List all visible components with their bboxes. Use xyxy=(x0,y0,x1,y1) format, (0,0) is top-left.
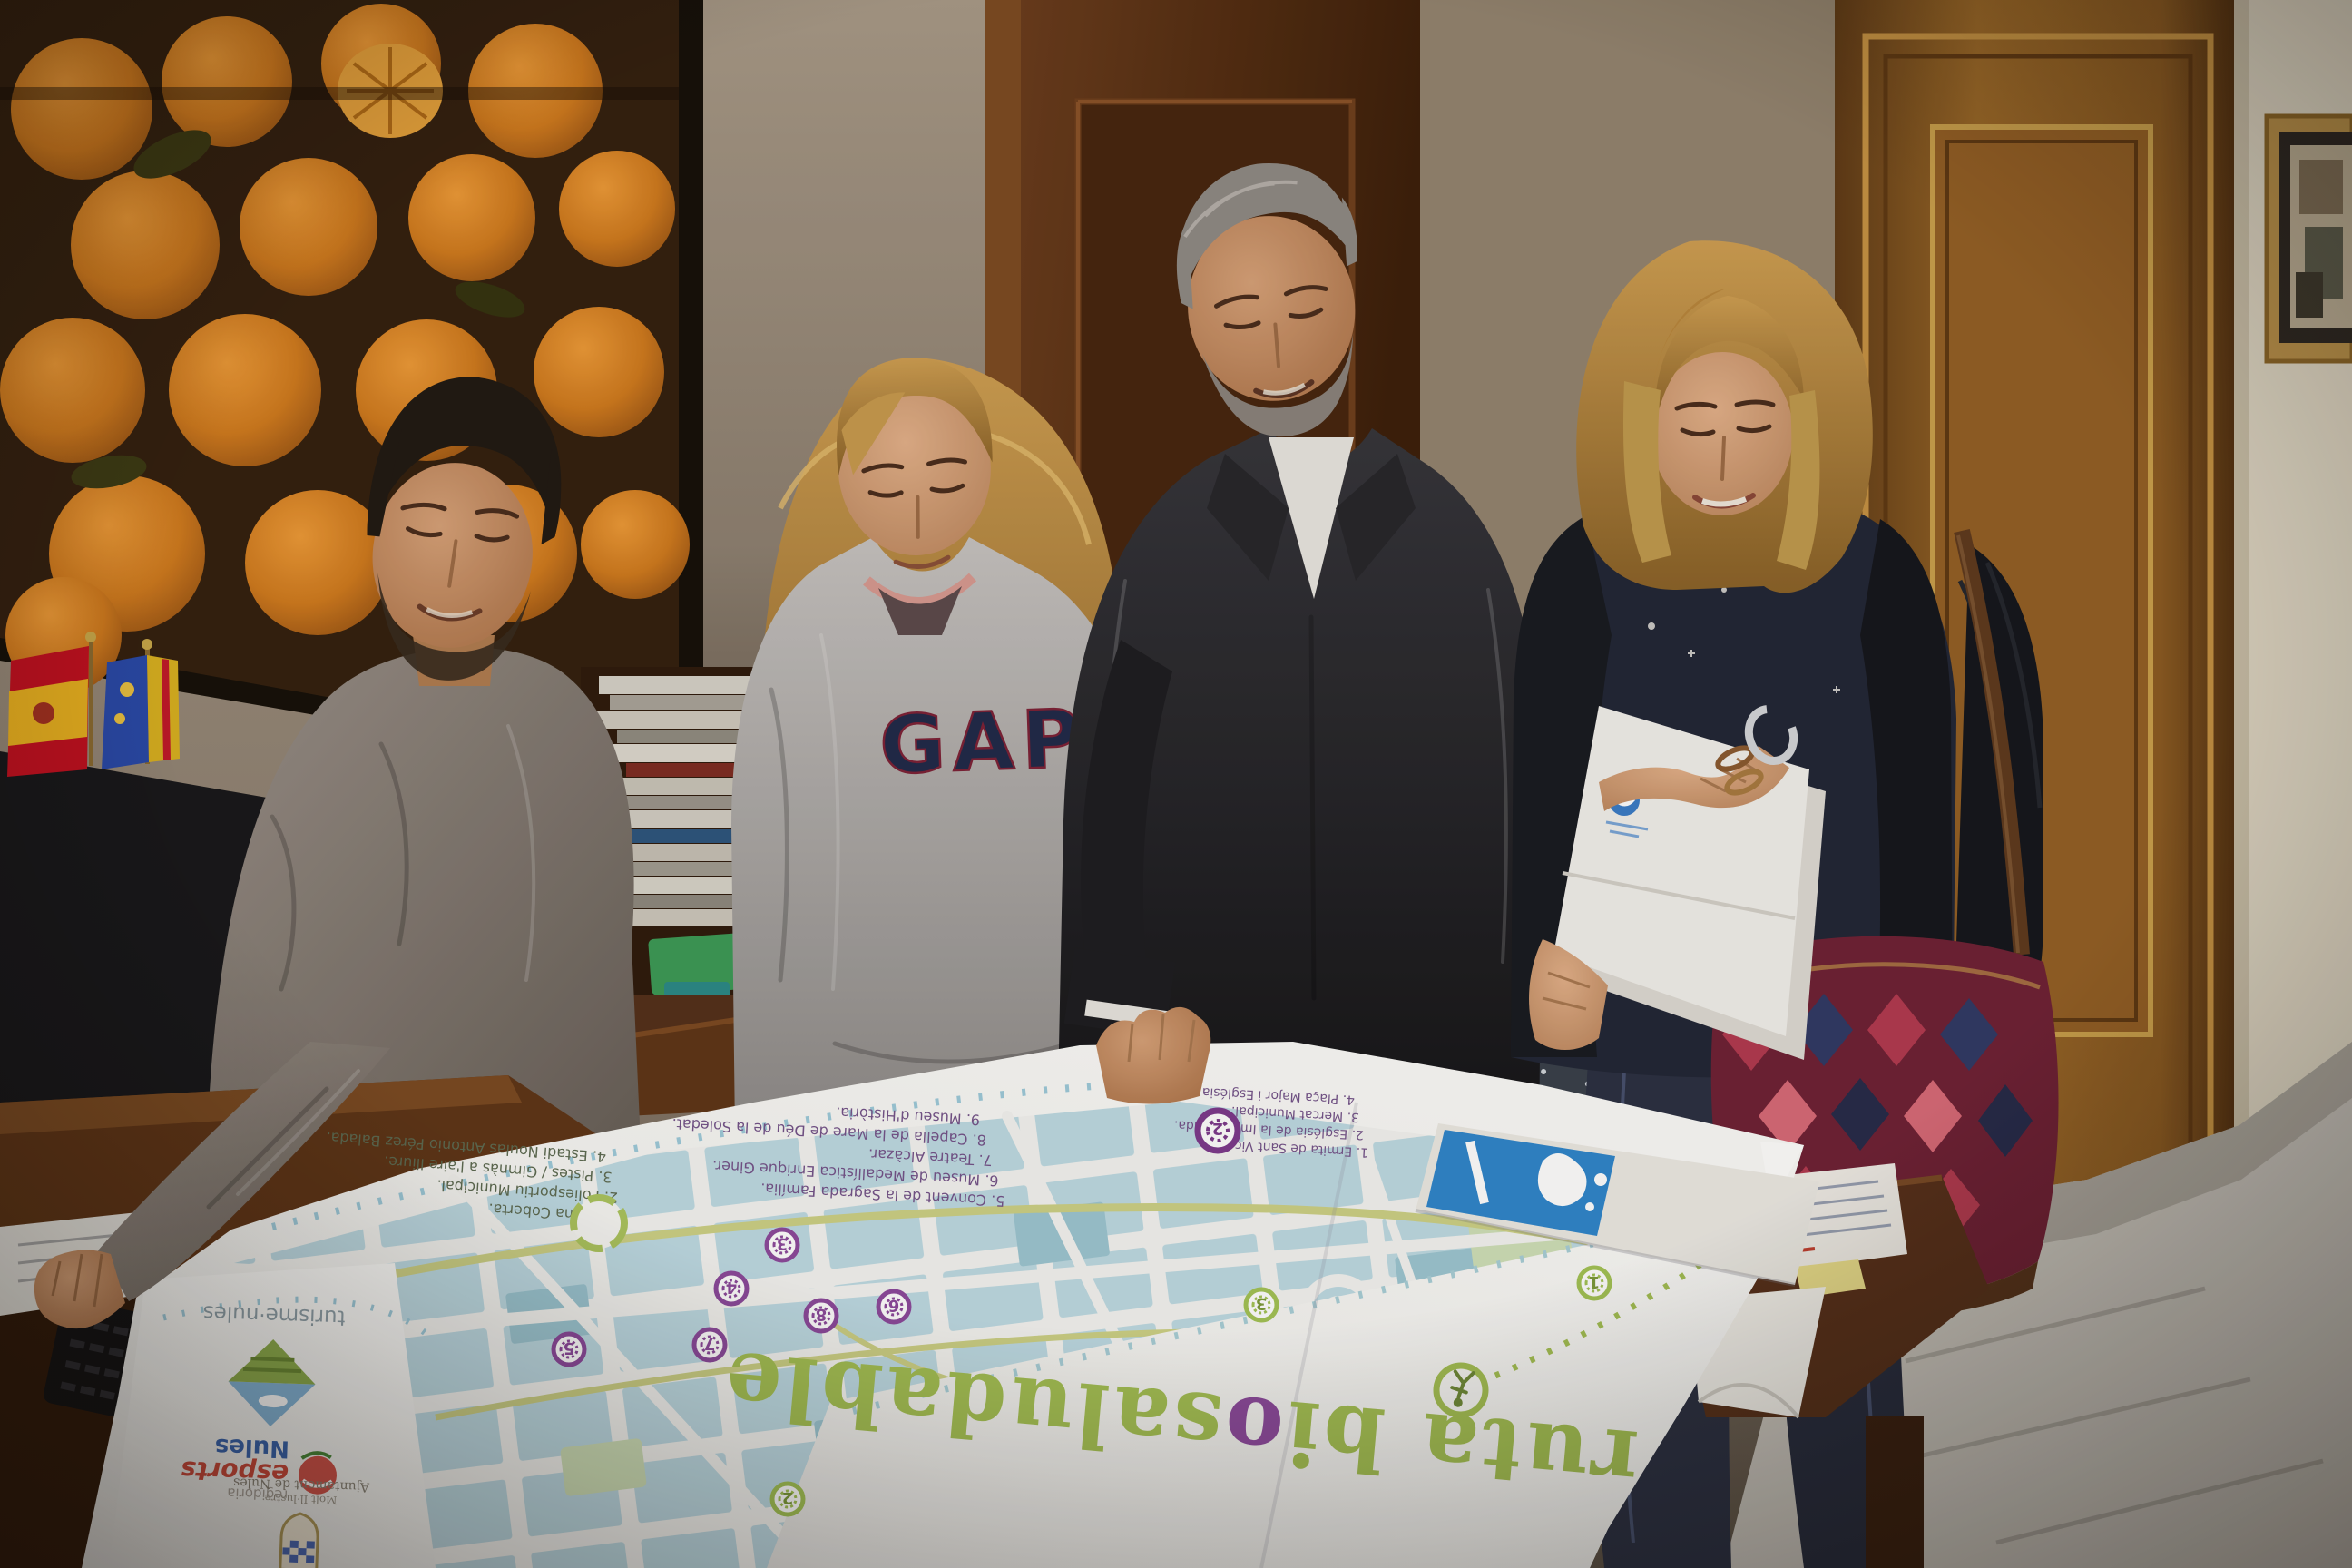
warm-grade xyxy=(0,0,2352,1568)
office-scene-photo: GAP xyxy=(0,0,2352,1568)
